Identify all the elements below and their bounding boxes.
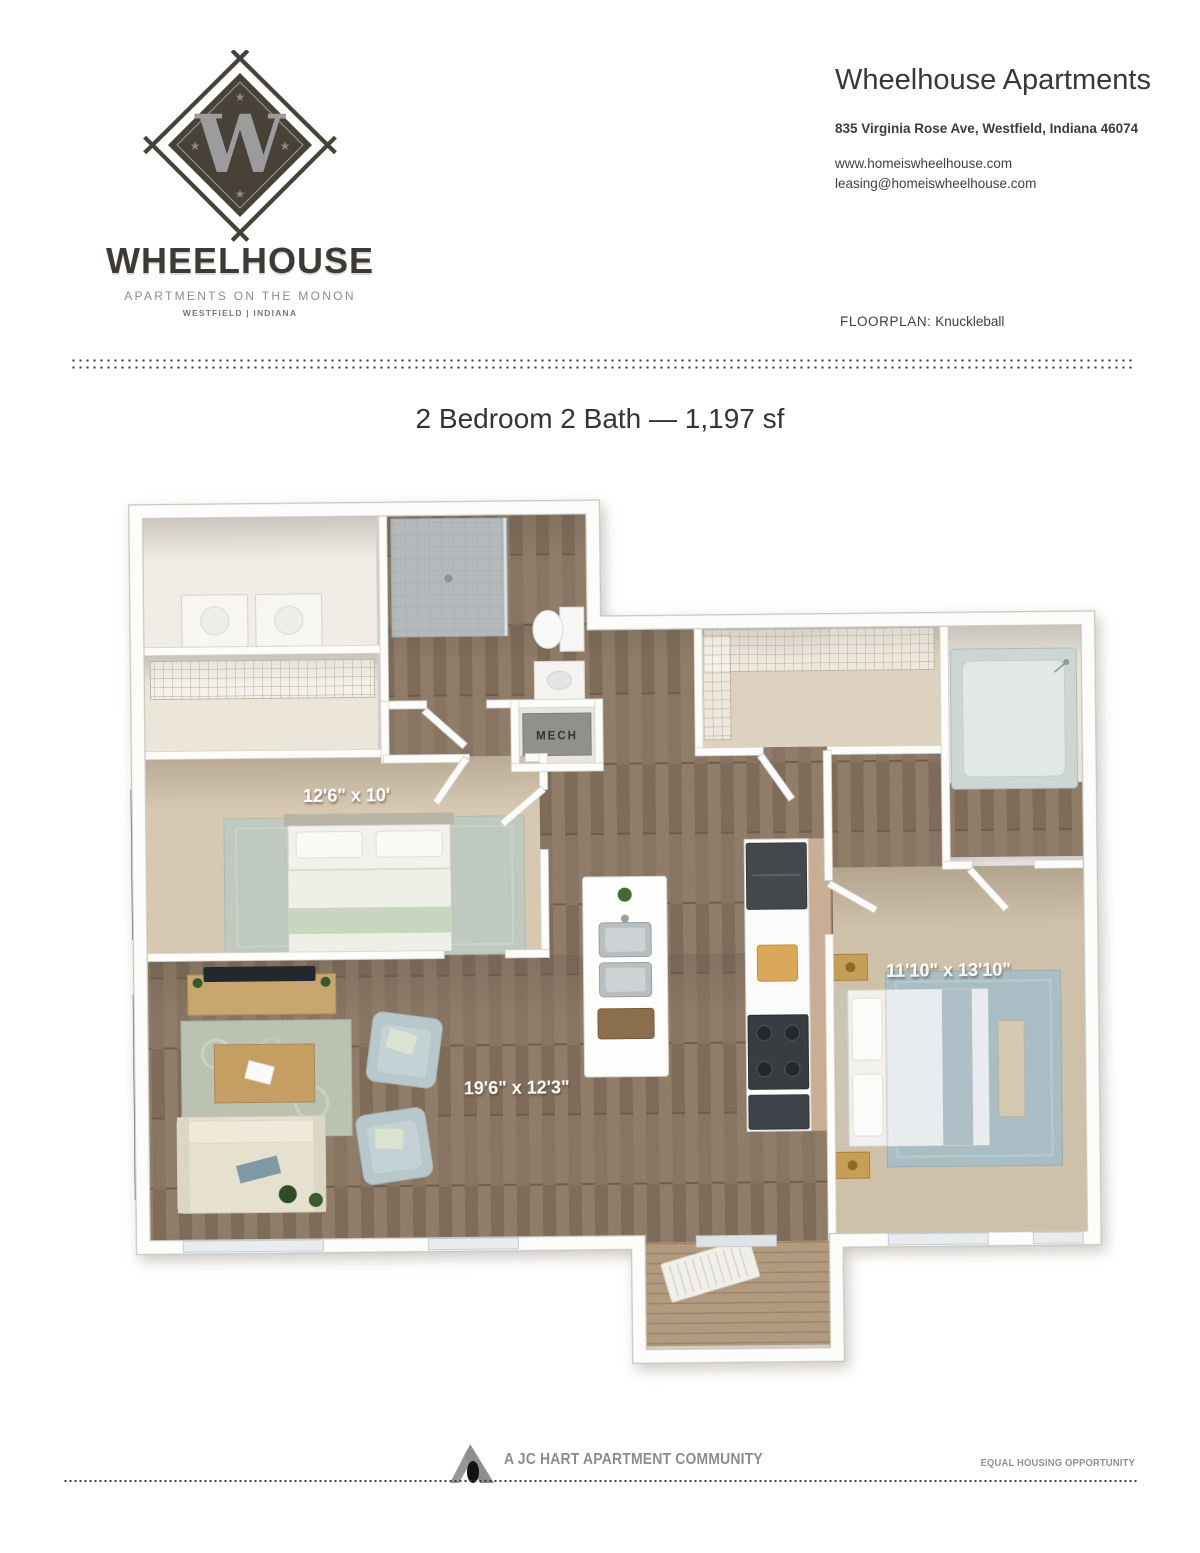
- property-block: Wheelhouse Apartments 835 Virginia Rose …: [835, 64, 1175, 194]
- master-headboard: [836, 988, 850, 1148]
- floorplan-name: Knuckleball: [935, 314, 1004, 329]
- brand-location: WESTFIELD | INDIANA: [95, 308, 385, 318]
- living-dimension: 19'6" x 12'3": [464, 1077, 570, 1098]
- svg-text:★: ★: [235, 90, 246, 104]
- master-tub: [950, 648, 1077, 789]
- mech-label: MECH: [536, 730, 578, 742]
- floorplan-line: FLOORPLAN: Knuckleball: [840, 314, 1004, 329]
- brand-tagline: APARTMENTS ON THE MONON: [95, 289, 385, 303]
- flyer-page: W ★ ★ ★ ★ WHEELHOUSE APARTMENTS ON THE M…: [0, 0, 1200, 1553]
- bedroom2-dimension: 12'6" x 10': [303, 785, 390, 806]
- brand-logo: W ★ ★ ★ ★: [95, 50, 385, 246]
- footer-dotted-rule: [63, 1479, 1137, 1483]
- property-address: 835 Virginia Rose Ave, Westfield, Indian…: [835, 121, 1175, 136]
- bed2-headboard: [284, 812, 454, 826]
- floorplan-label: FLOORPLAN:: [840, 314, 932, 329]
- mech-unit: MECH: [523, 713, 591, 756]
- svg-text:★: ★: [235, 187, 246, 201]
- bed-bench: [998, 1020, 1025, 1116]
- dishwasher: [749, 1095, 809, 1130]
- brand-block: W ★ ★ ★ ★ WHEELHOUSE APARTMENTS ON THE M…: [95, 50, 385, 318]
- svg-text:★: ★: [280, 139, 291, 153]
- logo-monogram: W: [194, 97, 286, 191]
- plan-title: 2 Bedroom 2 Bath — 1,197 sf: [0, 403, 1200, 435]
- svg-text:★: ★: [190, 139, 201, 153]
- master-dimension: 11'10" x 13'10": [886, 960, 1011, 981]
- website-link[interactable]: www.homeiswheelhouse.com: [835, 154, 1175, 174]
- footer-community-text: A JC HART APARTMENT COMMUNITY: [504, 1451, 763, 1469]
- equal-housing-text: EQUAL HOUSING OPPORTUNITY: [971, 1458, 1136, 1469]
- floorplan-image: MECH: [80, 480, 1104, 1371]
- tv: [203, 966, 315, 982]
- property-name: Wheelhouse Apartments: [835, 64, 1175, 97]
- email-link[interactable]: leasing@homeiswheelhouse.com: [835, 174, 1175, 194]
- stove: [748, 1015, 809, 1090]
- closet-left-shelving: [150, 659, 374, 699]
- toilet-bowl: [533, 610, 563, 648]
- brand-name: WHEELHOUSE: [95, 240, 385, 282]
- dotted-divider: [70, 356, 1132, 373]
